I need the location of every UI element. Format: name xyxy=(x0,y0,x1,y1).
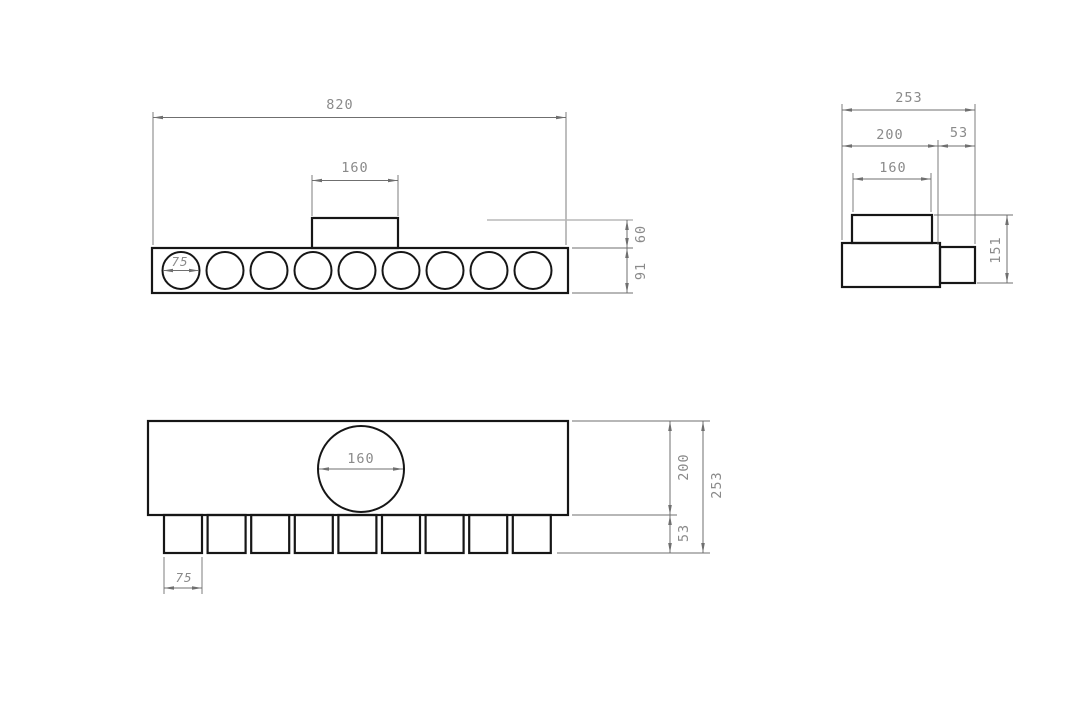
plan-view-body-outline xyxy=(148,421,568,515)
plan-view: 160 75 200 53 253 xyxy=(148,421,725,594)
plan-view-tab-outline xyxy=(338,515,376,553)
front-view-hole-circle xyxy=(251,252,288,289)
dim-label: 60 xyxy=(633,225,649,243)
side-view-body-outline xyxy=(842,243,940,287)
plan-view-tabs xyxy=(164,515,551,553)
plan-view-tab-outline xyxy=(251,515,289,553)
plan-view-tab-outline xyxy=(382,515,420,553)
dim-plan-depths: 200 53 253 xyxy=(557,421,725,553)
front-view-holes xyxy=(163,252,552,289)
side-view-port-block xyxy=(852,215,932,243)
dim-side-body-depth: 200 53 xyxy=(842,125,975,245)
dim-label: 91 xyxy=(633,262,649,280)
front-view-hole-circle xyxy=(383,252,420,289)
dim-plan-tab-width: 75 xyxy=(164,557,202,594)
dim-label: 53 xyxy=(950,125,968,141)
dim-label: 53 xyxy=(676,524,692,542)
front-view-hole-circle xyxy=(339,252,376,289)
dim-label: 160 xyxy=(879,160,906,176)
dim-label: 253 xyxy=(709,471,725,498)
dim-front-port-width: 160 xyxy=(312,160,398,216)
side-view-outlet-outline xyxy=(940,247,975,283)
plan-view-tab-outline xyxy=(469,515,507,553)
dim-side-port-width: 160 xyxy=(853,160,931,212)
plan-view-tab-outline xyxy=(208,515,246,553)
dim-side-overall-height: 151 xyxy=(934,215,1013,283)
technical-drawing: 820 160 75 60 91 xyxy=(0,0,1077,706)
front-view-hole-circle xyxy=(427,252,464,289)
plan-view-tab-outline xyxy=(513,515,551,553)
plan-view-tab-outline xyxy=(164,515,202,553)
plan-view-tab-outline xyxy=(295,515,333,553)
dim-label: 160 xyxy=(347,451,374,467)
front-view-hole-circle xyxy=(295,252,332,289)
dim-label: 151 xyxy=(988,236,1004,263)
dim-side-overall-depth: 253 xyxy=(842,90,975,244)
front-view-port-block xyxy=(312,218,398,248)
dim-label: 253 xyxy=(895,90,922,106)
plan-view-tab-outline xyxy=(426,515,464,553)
front-view-hole-circle xyxy=(471,252,508,289)
front-view-hole-circle xyxy=(515,252,552,289)
dim-label: 75 xyxy=(175,570,192,585)
front-view-hole-circle xyxy=(207,252,244,289)
front-view: 820 160 75 60 91 xyxy=(152,97,649,293)
dim-label: 200 xyxy=(876,127,903,143)
dim-label: 820 xyxy=(326,97,353,113)
dim-label: 75 xyxy=(171,254,188,269)
side-view: 253 200 53 160 151 xyxy=(842,90,1013,287)
drawing-canvas: 820 160 75 60 91 xyxy=(0,0,1077,706)
dim-plan-port-diameter: 160 xyxy=(319,451,403,469)
dim-label: 200 xyxy=(676,453,692,480)
dim-label: 160 xyxy=(341,160,368,176)
